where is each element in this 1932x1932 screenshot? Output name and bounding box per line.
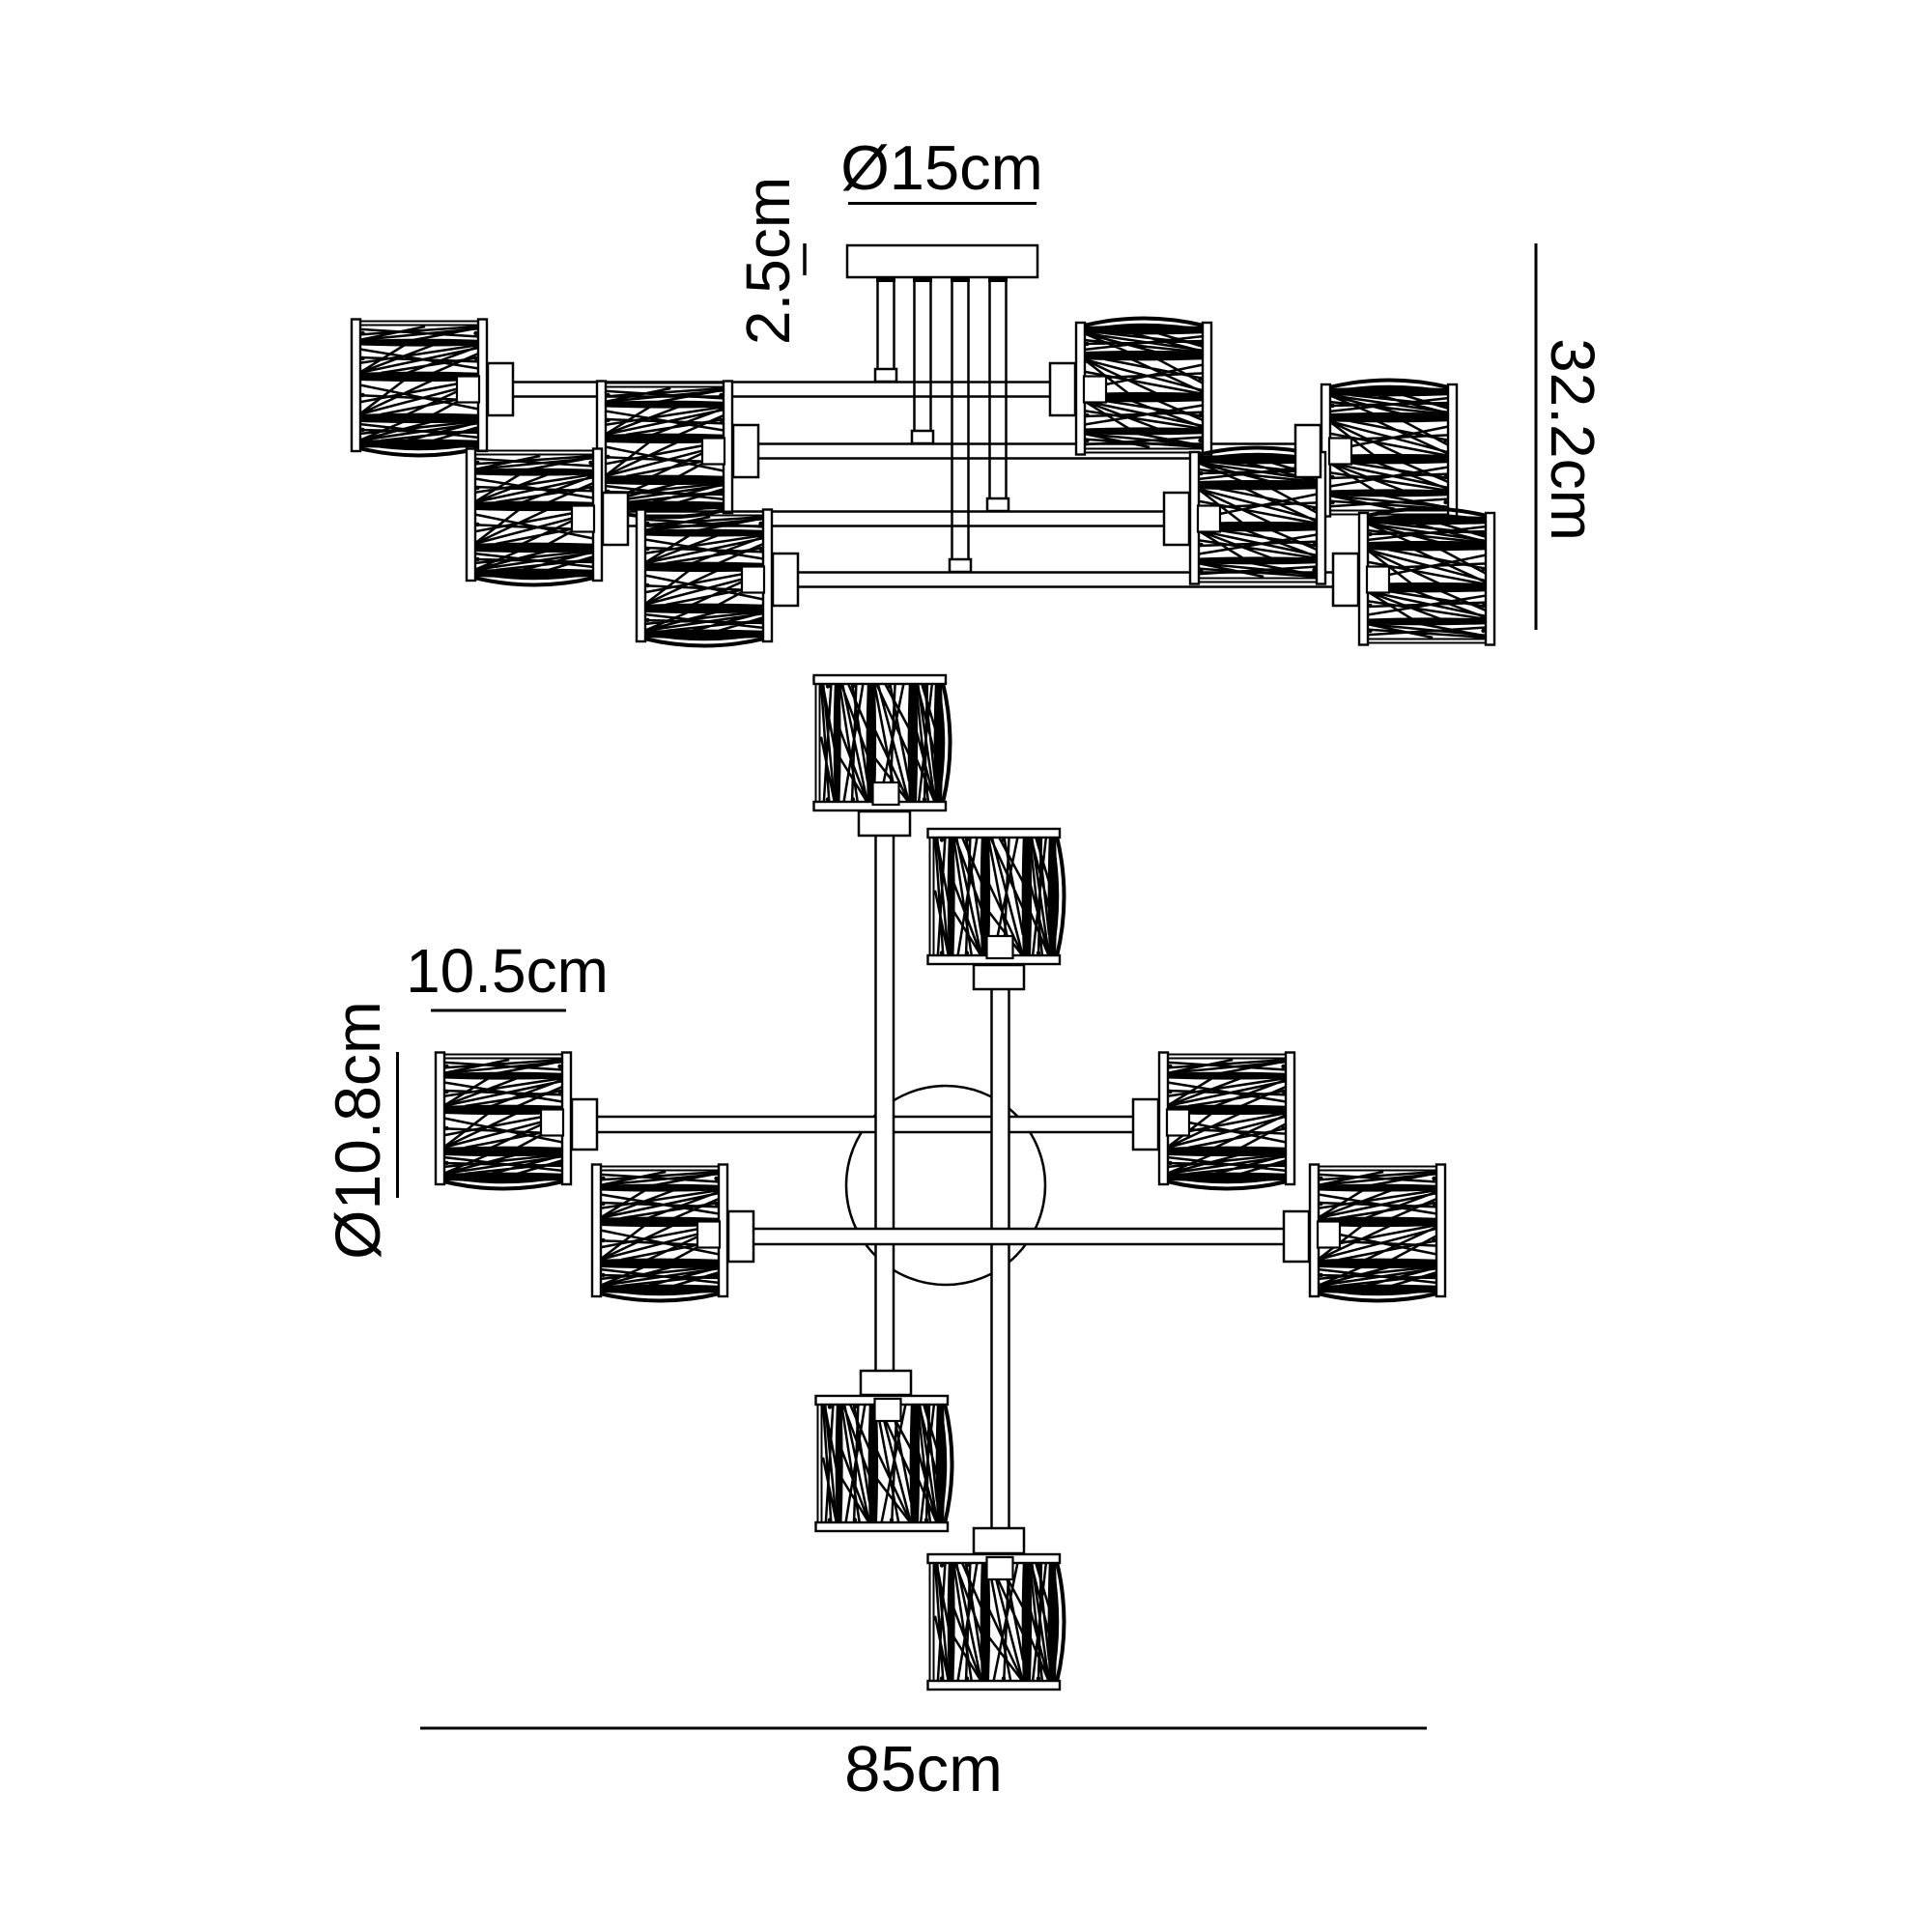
svg-text:32.2cm: 32.2cm <box>1538 338 1607 541</box>
svg-text:Ø15cm: Ø15cm <box>840 132 1043 203</box>
svg-text:Ø10.8cm: Ø10.8cm <box>322 1001 393 1260</box>
svg-text:2.5cm: 2.5cm <box>733 177 803 345</box>
svg-text:85cm: 85cm <box>844 1733 1003 1805</box>
svg-text:10.5cm: 10.5cm <box>406 936 609 1006</box>
